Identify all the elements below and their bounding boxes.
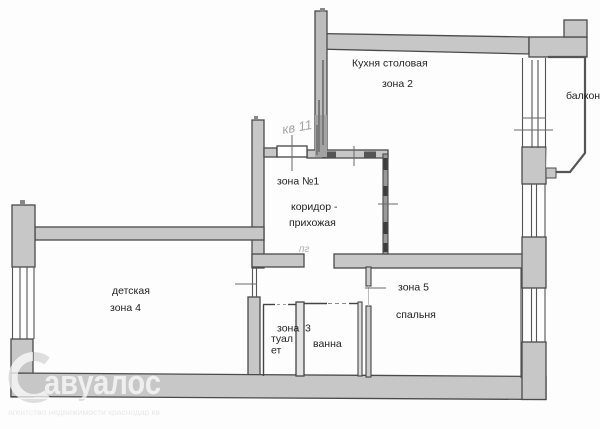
- svg-text:Кухня столовая: Кухня столовая: [352, 58, 428, 70]
- svg-text:зона №1: зона №1: [277, 176, 319, 188]
- svg-text:ет: ет: [271, 345, 281, 357]
- svg-text:зона 2: зона 2: [382, 78, 413, 90]
- svg-text:пг: пг: [299, 244, 310, 255]
- svg-text:ванна: ванна: [313, 338, 342, 350]
- svg-text:туал: туал: [271, 333, 293, 345]
- svg-text:зона 5: зона 5: [398, 282, 429, 294]
- svg-text:зона 4: зона 4: [110, 302, 141, 314]
- svg-text:3: 3: [305, 323, 311, 335]
- svg-text:агентство недвижимости краснод: агентство недвижимости краснодар кв: [8, 407, 160, 417]
- svg-text:спальня: спальня: [396, 309, 436, 321]
- svg-text:балкон: балкон: [566, 90, 600, 102]
- svg-text:детская: детская: [112, 285, 150, 297]
- svg-text:коридор -: коридор -: [291, 201, 338, 213]
- svg-text:прихожая: прихожая: [289, 217, 336, 229]
